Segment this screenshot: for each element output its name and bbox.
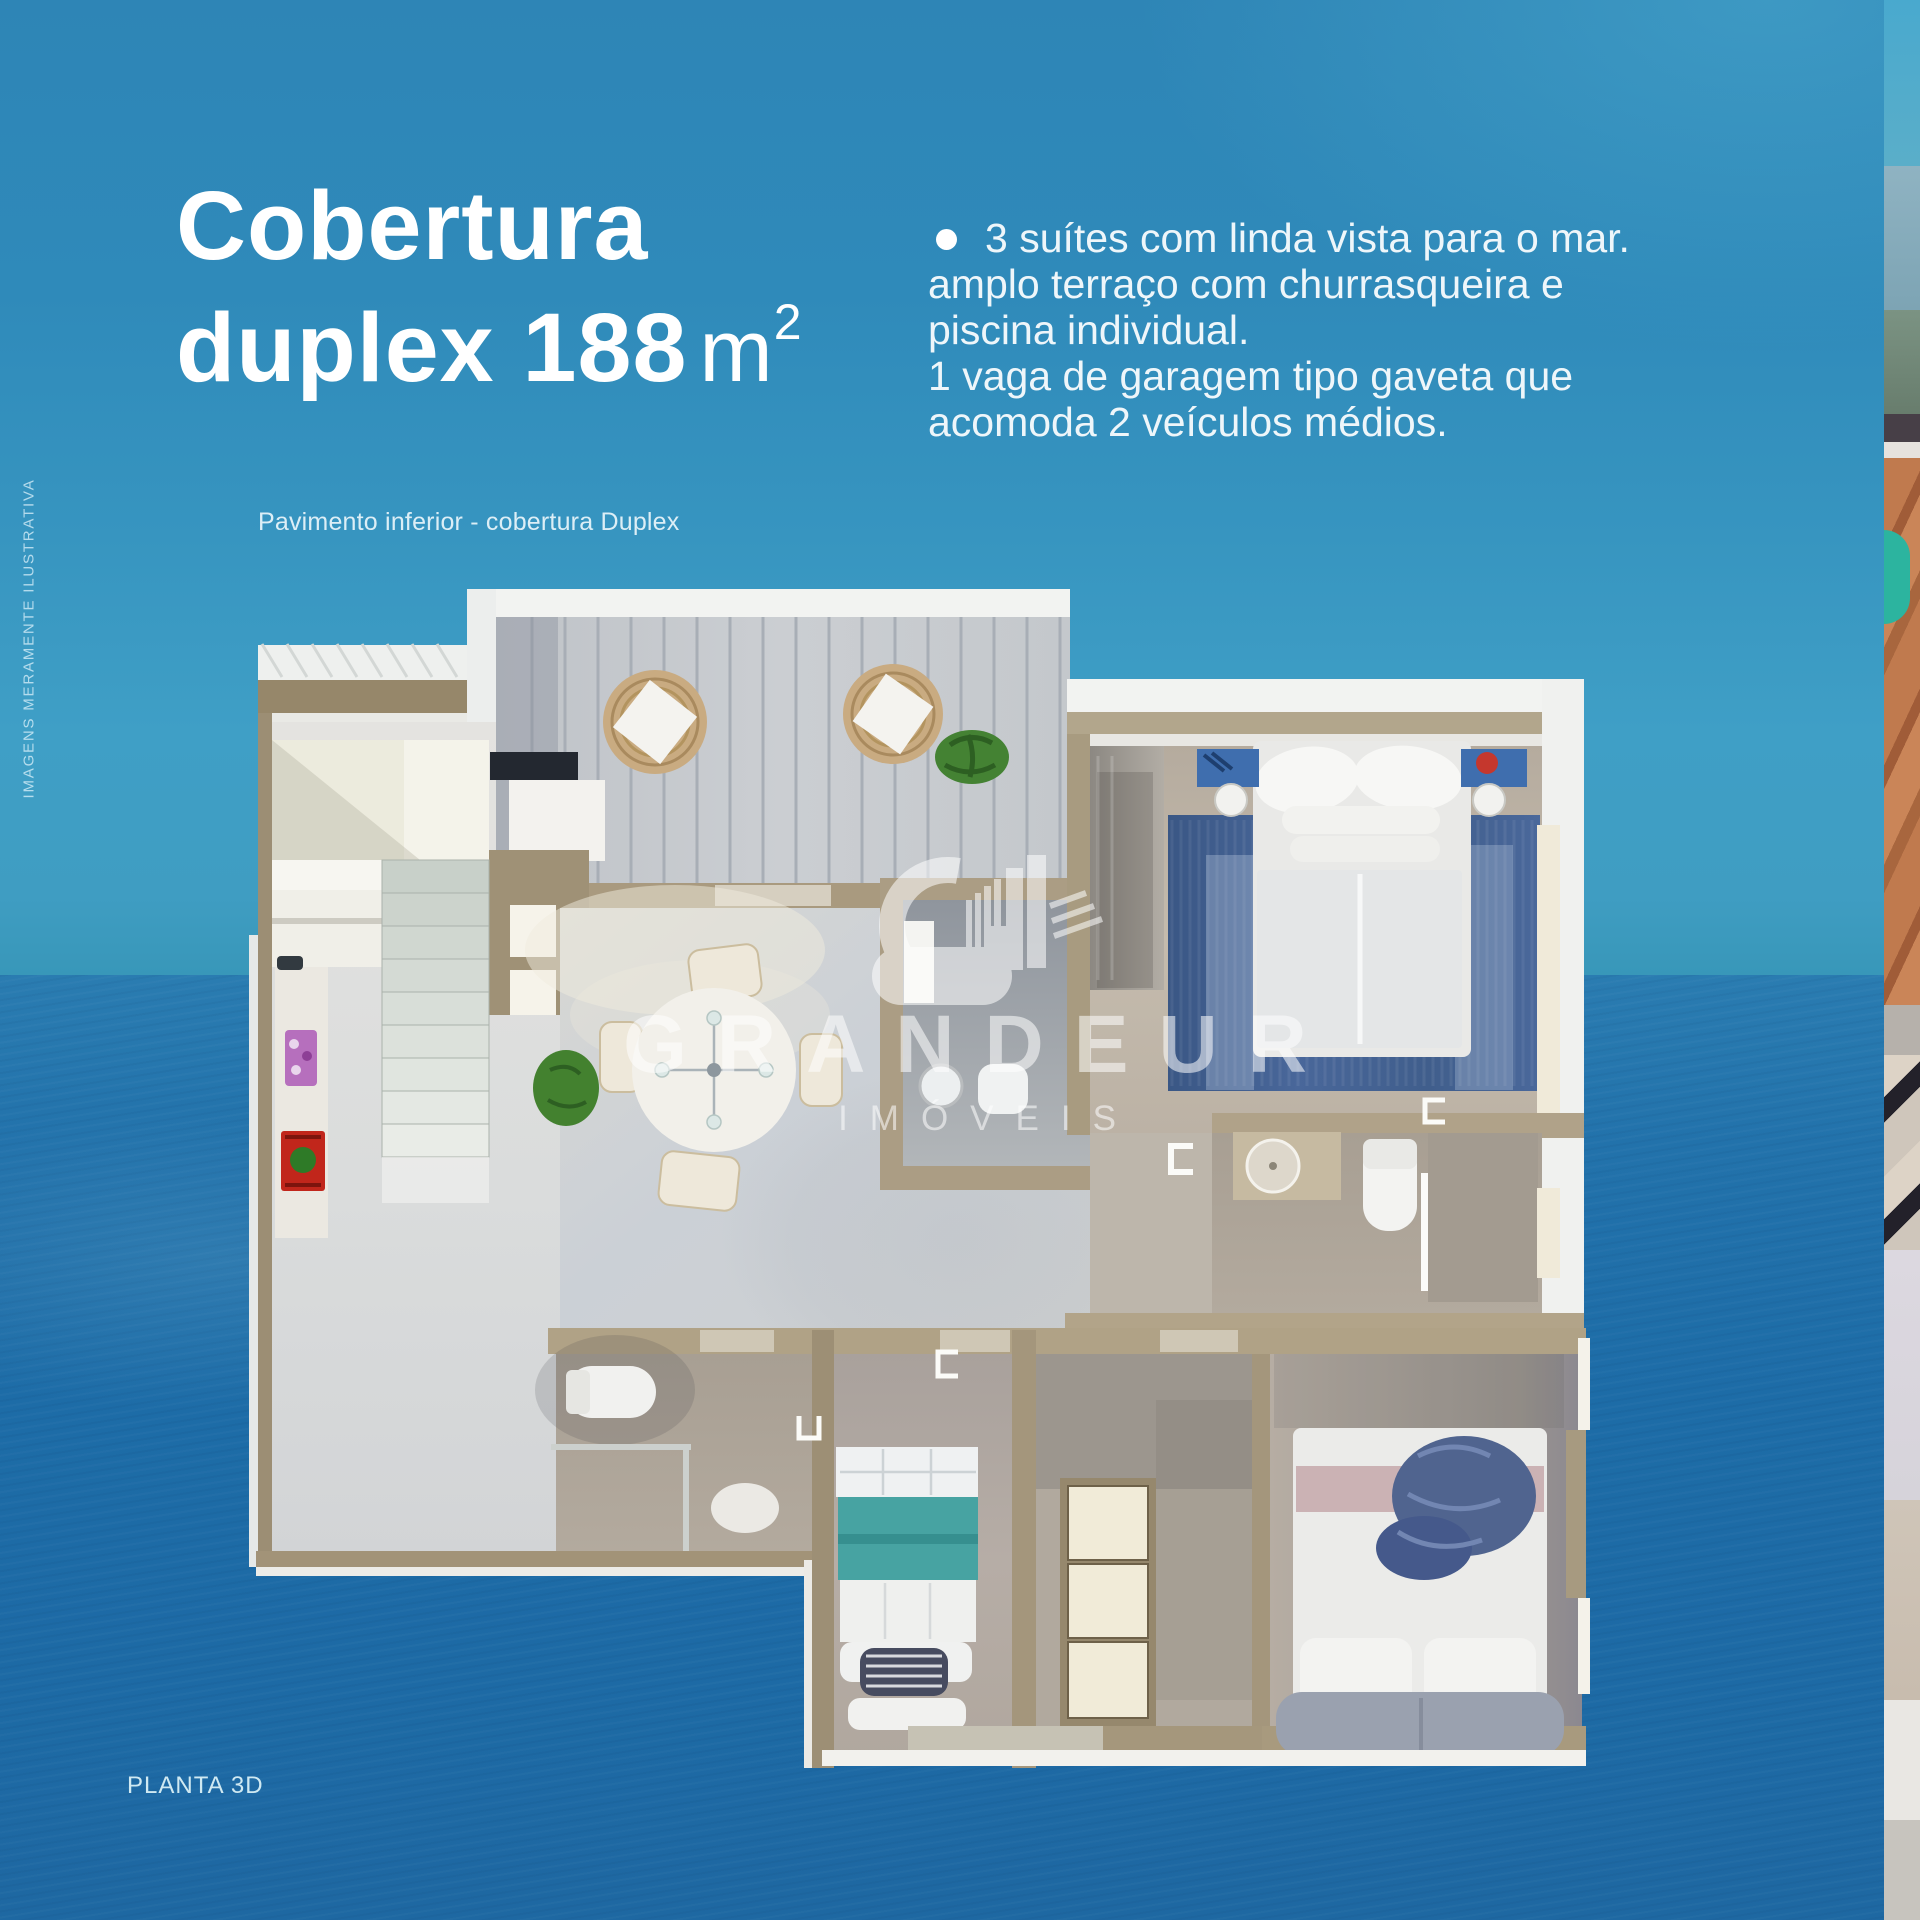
svg-text:GRANDEUR: GRANDEUR bbox=[623, 999, 1337, 1090]
svg-text:IMÓVEIS: IMÓVEIS bbox=[838, 1099, 1138, 1138]
